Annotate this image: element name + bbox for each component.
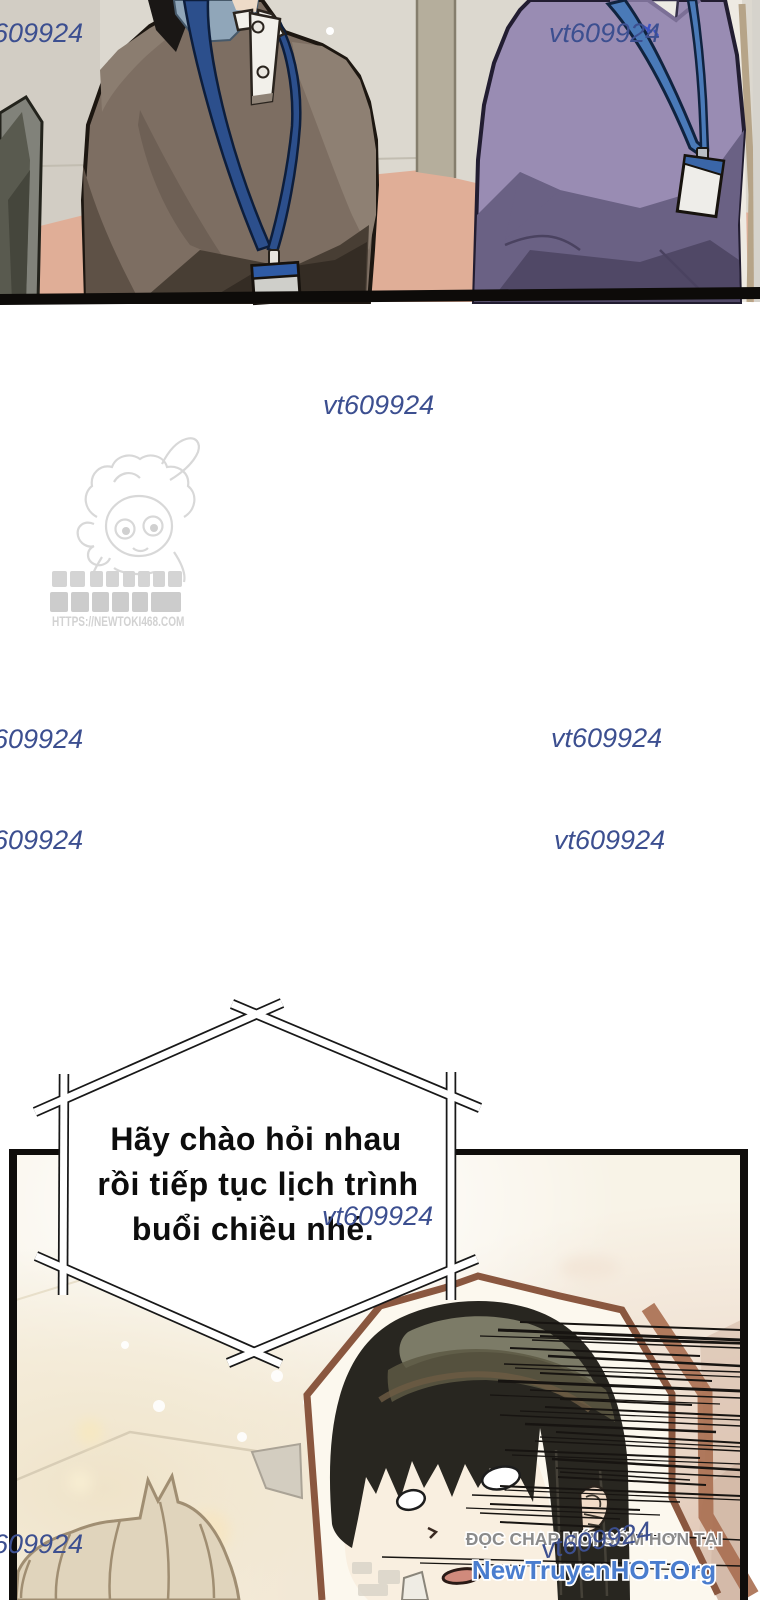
svg-text:vt609924: vt609924 [322, 1201, 433, 1231]
svg-text:HTTPS://NEWTOKI468.COM: HTTPS://NEWTOKI468.COM [52, 613, 184, 629]
svg-text:vt609924: vt609924 [549, 18, 660, 48]
svg-text:vt609924: vt609924 [0, 18, 83, 48]
svg-text:vt609924: vt609924 [323, 390, 434, 420]
svg-text:vt609924: vt609924 [0, 1529, 83, 1559]
svg-text:rồi tiếp tục lịch trình: rồi tiếp tục lịch trình [97, 1166, 418, 1202]
svg-text:vt609924: vt609924 [0, 724, 83, 754]
svg-text:vt609924: vt609924 [551, 723, 662, 753]
svg-text:vt609924: vt609924 [0, 825, 83, 855]
svg-text:vt609924: vt609924 [554, 825, 665, 855]
svg-text:Hãy chào hỏi nhau: Hãy chào hỏi nhau [110, 1121, 401, 1157]
svg-text:NewTruyenHOT.Org: NewTruyenHOT.Org [472, 1555, 716, 1585]
